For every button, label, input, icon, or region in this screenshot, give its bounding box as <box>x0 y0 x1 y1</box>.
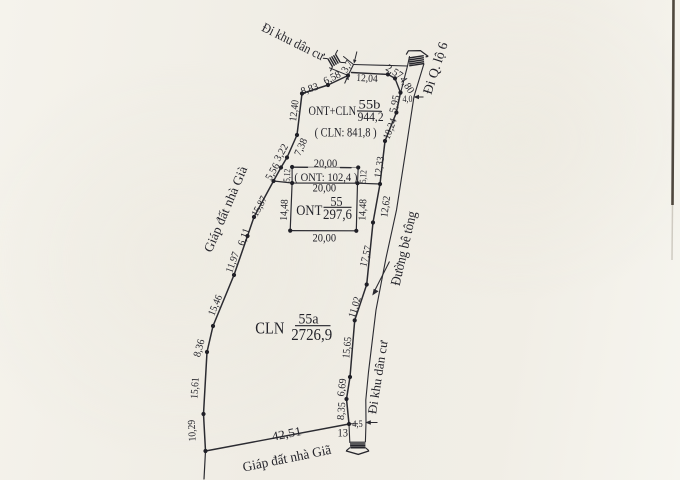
svg-text:6,69: 6,69 <box>336 378 349 397</box>
svg-text:14,48: 14,48 <box>357 199 369 221</box>
svg-text:8,35: 8,35 <box>336 402 349 421</box>
svg-text:CLN: CLN <box>255 318 284 337</box>
svg-text:20,00: 20,00 <box>313 183 337 195</box>
svg-text:ONT+CLN: ONT+CLN <box>309 103 357 118</box>
svg-text:Đi khu dân cư: Đi khu dân cư <box>260 20 328 64</box>
svg-text:8,83: 8,83 <box>299 82 320 98</box>
svg-text:5,12: 5,12 <box>283 168 294 182</box>
svg-text:15,65: 15,65 <box>341 336 354 359</box>
svg-text:297,6: 297,6 <box>323 207 352 223</box>
svg-text:( CLN: 841,8 ): ( CLN: 841,8 ) <box>315 126 377 140</box>
svg-text:20,00: 20,00 <box>314 158 338 170</box>
svg-text:4,0: 4,0 <box>403 95 413 105</box>
svg-text:15,61: 15,61 <box>189 377 201 399</box>
svg-text:12,04: 12,04 <box>356 73 379 85</box>
svg-text:ONT: ONT <box>296 203 322 219</box>
svg-text:14,48: 14,48 <box>279 199 291 221</box>
svg-text:4,5: 4,5 <box>352 420 363 430</box>
svg-text:2726,9: 2726,9 <box>291 325 332 344</box>
svg-text:5,12: 5,12 <box>359 170 370 184</box>
svg-text:10,29: 10,29 <box>187 420 199 442</box>
svg-text:20,00: 20,00 <box>313 232 337 244</box>
svg-text:13: 13 <box>338 425 349 439</box>
